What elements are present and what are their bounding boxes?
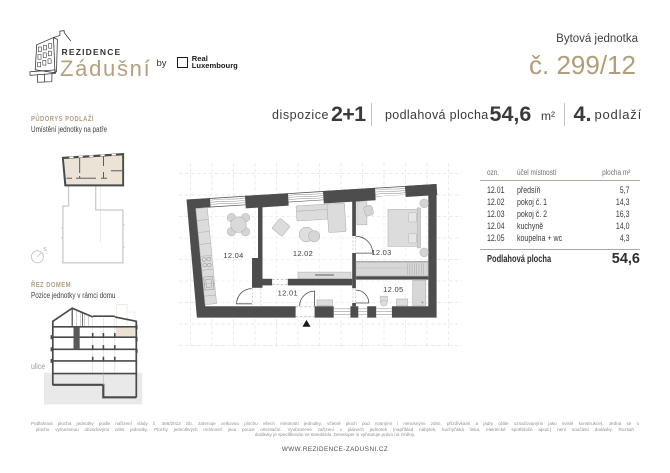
svg-text:12.05: 12.05 <box>383 285 403 294</box>
svg-text:12.04: 12.04 <box>223 251 243 260</box>
svg-text:12.03: 12.03 <box>371 248 391 257</box>
svg-text:12.02: 12.02 <box>293 249 313 258</box>
svg-text:S: S <box>43 247 47 253</box>
svg-text:12.01: 12.01 <box>278 288 298 297</box>
